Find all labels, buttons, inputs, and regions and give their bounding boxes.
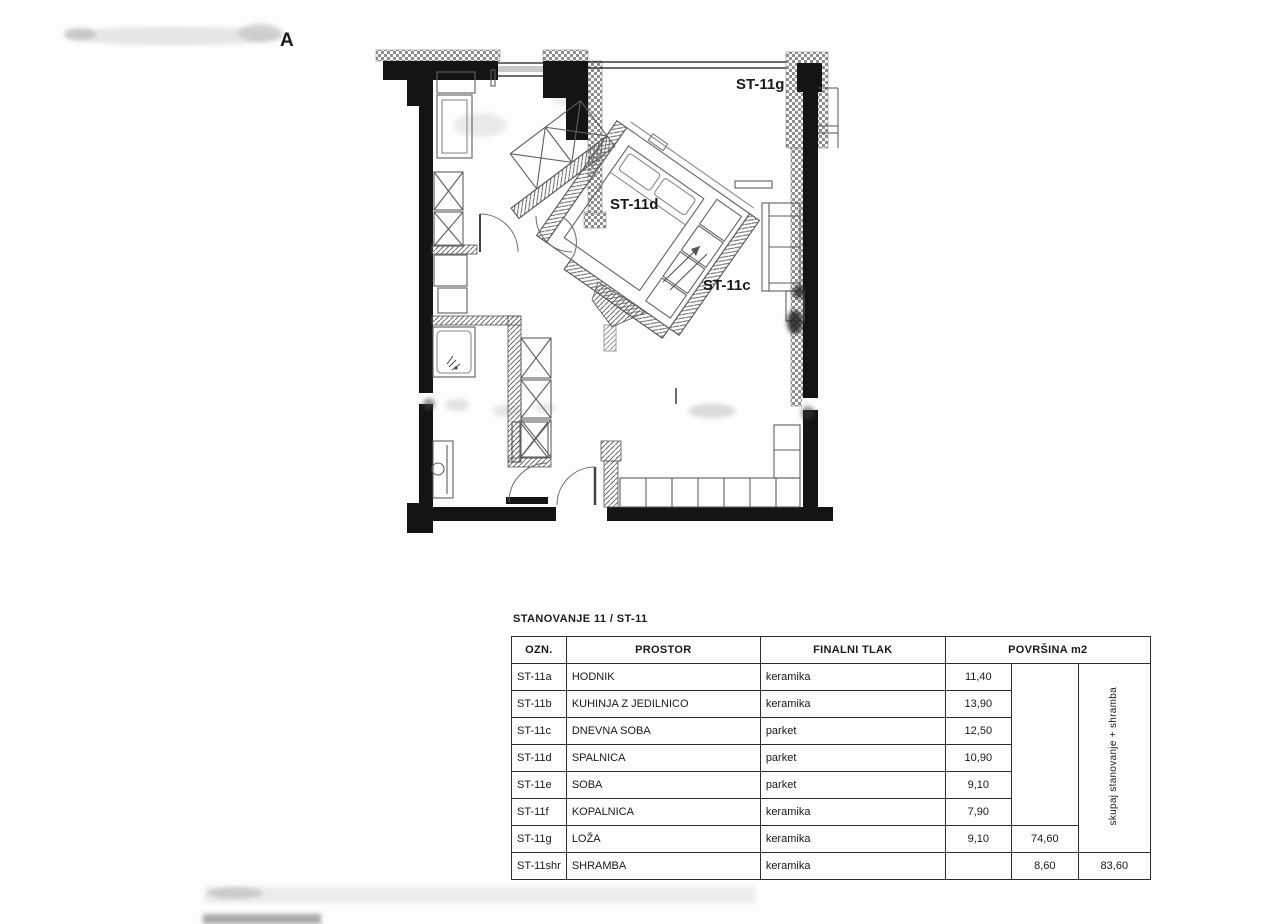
label-st11d: ST-11d: [610, 196, 658, 213]
wall-bottom-left: [420, 507, 556, 521]
shower: [433, 327, 475, 377]
wall-right: [803, 90, 818, 521]
cell-ozn: ST-11c: [512, 718, 567, 745]
cell-tlak: parket: [760, 745, 945, 772]
cell-ozn: ST-11f: [512, 799, 567, 826]
cell-area: 11,40: [945, 664, 1011, 691]
table-row: ST-11g LOŽA keramika 9,10 74,60: [512, 826, 1151, 853]
cell-area: 10,90: [945, 745, 1011, 772]
blot: [801, 406, 815, 420]
table-row: ST-11a HODNIK keramika 11,40 skupaj stan…: [512, 664, 1151, 691]
pillow: [653, 178, 696, 216]
cell-area: 9,10: [945, 826, 1011, 853]
rotated-note: skupaj stanovanje + shramba: [1109, 687, 1119, 825]
cell-ozn: ST-11e: [512, 772, 567, 799]
window-glass: [498, 66, 543, 72]
cell-prostor: KUHINJA Z JEDILNICO: [566, 691, 760, 718]
insulation-top-left: [376, 50, 500, 61]
door-arc-bath: [480, 214, 518, 252]
insulation-top-mid: [543, 50, 588, 61]
bath-cabinet: [434, 255, 467, 286]
shelf: [735, 181, 772, 188]
area-table: OZN. PROSTOR FINALNI TLAK POVRŠINA m2 ST…: [511, 636, 1151, 880]
wardrobe-x-entry: [512, 422, 548, 462]
cell-prostor: HODNIK: [566, 664, 760, 691]
door-arc-entry: [557, 467, 595, 505]
wall-left: [419, 61, 433, 522]
cell-ozn: ST-11g: [512, 826, 567, 853]
insulation-column-cap: [584, 212, 606, 228]
cell-prostor: SPALNICA: [566, 745, 760, 772]
smudge-bottom-bar: [203, 914, 321, 924]
wall-top-left: [383, 61, 498, 80]
wall-top-column-leg: [566, 98, 588, 140]
header-ozn: OZN.: [512, 637, 567, 664]
cell-ozn: ST-11b: [512, 691, 567, 718]
smudge-bottom-dot: [207, 887, 263, 899]
wall-top-column: [543, 61, 588, 98]
cell-prostor: DNEVNA SOBA: [566, 718, 760, 745]
bath-sink: [438, 288, 467, 313]
cell-area: [945, 853, 1011, 880]
entry-pillar-cap: [601, 441, 621, 461]
kitchen-counter: [620, 425, 800, 507]
insulation-hall-column: [588, 61, 602, 214]
cell-subtotal: 8,60: [1011, 853, 1078, 880]
door-arc-hall: [509, 463, 547, 502]
smudge-dot: [64, 28, 96, 40]
cell-tlak: keramika: [760, 799, 945, 826]
insulation-strips: [376, 50, 828, 406]
cell-subtotal: 74,60: [1011, 826, 1078, 853]
cell-ozn: ST-11d: [512, 745, 567, 772]
smudge-mid: [445, 399, 469, 411]
smudge-bottom-band: [205, 887, 755, 903]
corner-label-a: A: [280, 30, 294, 51]
cell-area: 12,50: [945, 718, 1011, 745]
blot: [787, 310, 803, 334]
cell-tlak: parket: [760, 718, 945, 745]
cell-prostor: KOPALNICA: [566, 799, 760, 826]
table-row: ST-11shr SHRAMBA keramika 8,60 83,60: [512, 853, 1151, 880]
cell-tlak: keramika: [760, 691, 945, 718]
blot: [793, 285, 805, 299]
cell-ozn: ST-11a: [512, 664, 567, 691]
bedroom-group: [530, 113, 765, 346]
header-tlak: FINALNI TLAK: [760, 637, 945, 664]
smudge-dot: [238, 24, 282, 42]
wardrobe-x-left: [434, 172, 463, 246]
toilet: [432, 441, 453, 498]
smudge-mid: [535, 403, 555, 413]
insulation-right-wall: [791, 148, 803, 406]
blot: [423, 398, 435, 410]
cell-note-span: skupaj stanovanje + shramba: [1078, 664, 1150, 853]
wardrobe-hatch-side: [512, 422, 520, 462]
bedroom-window-tick: [648, 134, 667, 151]
label-st11g: ST-11g: [736, 76, 784, 93]
wardrobe-x-column: [521, 338, 551, 457]
bedroom-wall-right: [669, 214, 759, 336]
cell-subtotal-span: [1011, 664, 1078, 826]
table-title: STANOVANJE 11 / ST-11: [513, 613, 648, 625]
kitchen-counter-corner: [774, 425, 800, 478]
cell-ozn: ST-11shr: [512, 853, 567, 880]
interior-walls: [432, 245, 646, 507]
scanned-floorplan-page: A ST-11g ST-11d ST-11c STANOVANJE 11 / S…: [0, 0, 1280, 924]
smudge-erased-table: [688, 404, 736, 418]
door-leaf-hall: [506, 497, 548, 504]
cell-area: 13,90: [945, 691, 1011, 718]
wall-bottom-right: [607, 507, 833, 521]
cell-prostor: SHRAMBA: [566, 853, 760, 880]
pillow: [618, 153, 661, 191]
header-prostor: PROSTOR: [566, 637, 760, 664]
arrow-head: [691, 246, 700, 256]
cell-tlak: parket: [760, 772, 945, 799]
cell-prostor: SOBA: [566, 772, 760, 799]
cell-total: 83,60: [1078, 853, 1150, 880]
cell-tlak: keramika: [760, 853, 945, 880]
cell-area: 7,90: [945, 799, 1011, 826]
cell-prostor: LOŽA: [566, 826, 760, 853]
partition-tail: [604, 325, 616, 351]
cell-area: 9,10: [945, 772, 1011, 799]
cell-tlak: keramika: [760, 826, 945, 853]
table-header-row: OZN. PROSTOR FINALNI TLAK POVRŠINA m2: [512, 637, 1151, 664]
label-st11c: ST-11c: [703, 277, 751, 294]
cell-tlak: keramika: [760, 664, 945, 691]
header-povrsina: POVRŠINA m2: [945, 637, 1150, 664]
smudge-room: [454, 113, 506, 137]
entry-pillar: [604, 461, 618, 507]
